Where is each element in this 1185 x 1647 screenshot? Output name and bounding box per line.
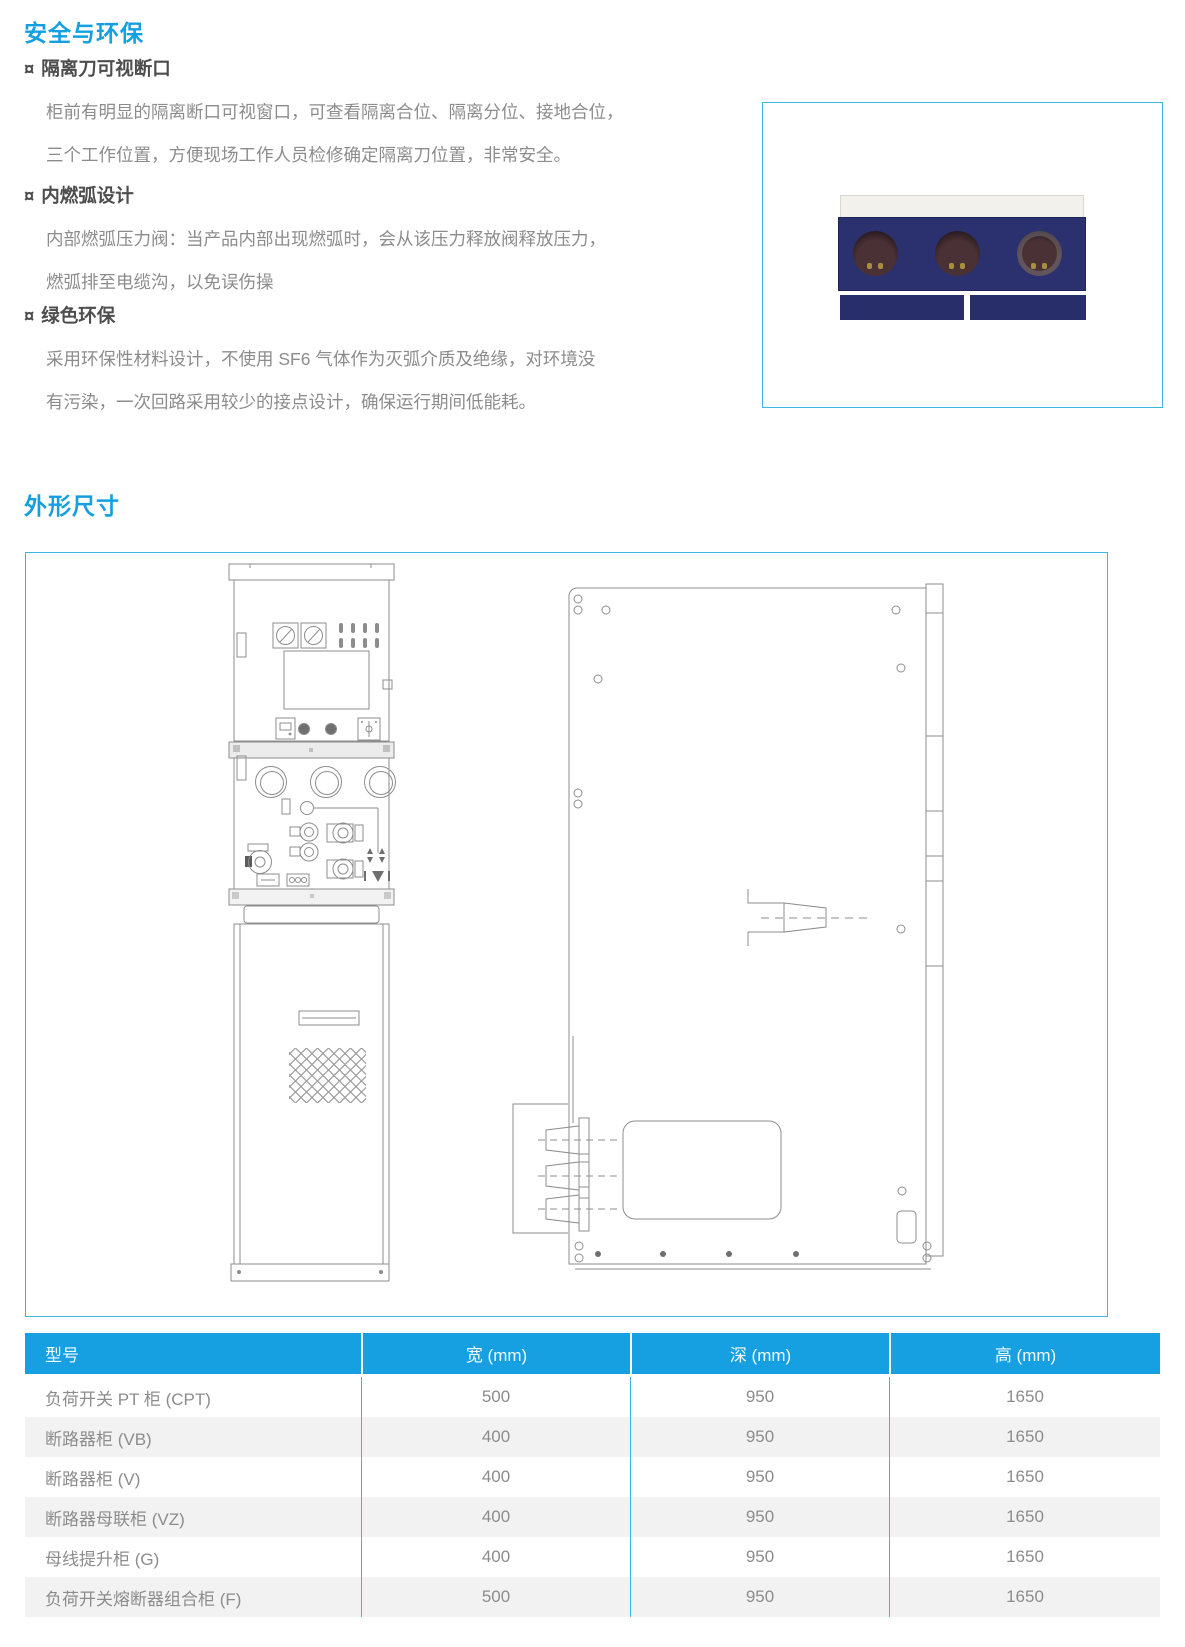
product-photo-frame <box>762 102 1163 408</box>
cabinet-outline-drawing <box>26 553 1107 1316</box>
side-view-drawing <box>513 584 943 1269</box>
feature-paragraph: 采用环保性材料设计，不使用 SF6 气体作为灭弧介质及绝缘，对环境没 有污染，一… <box>46 338 704 424</box>
table-row: 断路器柜 (V) 400 950 1650 <box>25 1457 1160 1497</box>
header-width: 宽 (mm) <box>361 1333 630 1374</box>
feature-internal-arc: ¤内燃弧设计 内部燃弧压力阀：当产品内部出现燃弧时，会从该压力释放阀释放压力， … <box>24 182 704 304</box>
bushing-hole <box>1017 231 1062 276</box>
table-row: 断路器母联柜 (VZ) 400 950 1650 <box>25 1497 1160 1537</box>
width-cell: 400 <box>361 1497 630 1537</box>
table-header-row: 型号 宽 (mm) 深 (mm) 高 (mm) <box>25 1333 1160 1377</box>
paragraph-line: 内部燃弧压力阀：当产品内部出现燃弧时，会从该压力释放阀释放压力， <box>46 218 704 261</box>
section-title-safety: 安全与环保 <box>24 14 144 48</box>
front-view-drawing <box>229 564 396 1281</box>
depth-cell: 950 <box>630 1497 889 1537</box>
feature-paragraph: 柜前有明显的隔离断口可视窗口，可查看隔离合位、隔离分位、接地合位， 三个工作位置… <box>46 91 704 177</box>
depth-cell: 950 <box>630 1537 889 1577</box>
height-cell: 1650 <box>889 1457 1160 1497</box>
paragraph-line: 三个工作位置，方便现场工作人员检修确定隔离刀位置，非常安全。 <box>46 134 704 177</box>
table-row: 断路器柜 (VB) 400 950 1650 <box>25 1417 1160 1457</box>
model-cell: 断路器母联柜 (VZ) <box>25 1497 361 1537</box>
depth-cell: 950 <box>630 1417 889 1457</box>
depth-cell: 950 <box>630 1457 889 1497</box>
feature-heading: ¤内燃弧设计 <box>24 182 704 208</box>
header-model: 型号 <box>25 1333 361 1374</box>
model-cell: 断路器柜 (VB) <box>25 1417 361 1457</box>
paragraph-line: 采用环保性材料设计，不使用 SF6 气体作为灭弧介质及绝缘，对环境没 <box>46 338 704 381</box>
bullet-icon: ¤ <box>24 58 34 79</box>
height-cell: 1650 <box>889 1377 1160 1417</box>
height-cell: 1650 <box>889 1417 1160 1457</box>
width-cell: 500 <box>361 1377 630 1417</box>
feature-heading: ¤绿色环保 <box>24 302 704 328</box>
table-row: 母线提升柜 (G) 400 950 1650 <box>25 1537 1160 1577</box>
bushing-hole <box>935 231 980 276</box>
height-cell: 1650 <box>889 1577 1160 1617</box>
depth-cell: 950 <box>630 1377 889 1417</box>
photo-navy-panel <box>838 217 1086 291</box>
feature-eco-friendly: ¤绿色环保 采用环保性材料设计，不使用 SF6 气体作为灭弧介质及绝缘，对环境没… <box>24 302 704 424</box>
model-cell: 断路器柜 (V) <box>25 1457 361 1497</box>
height-cell: 1650 <box>889 1537 1160 1577</box>
bullet-icon: ¤ <box>24 185 34 206</box>
header-height: 高 (mm) <box>889 1333 1160 1374</box>
depth-cell: 950 <box>630 1577 889 1617</box>
model-cell: 负荷开关熔断器组合柜 (F) <box>25 1577 361 1617</box>
model-cell: 母线提升柜 (G) <box>25 1537 361 1577</box>
feature-visible-break: ¤隔离刀可视断口 柜前有明显的隔离断口可视窗口，可查看隔离合位、隔离分位、接地合… <box>24 55 704 177</box>
feature-heading: ¤隔离刀可视断口 <box>24 55 704 81</box>
dimensions-table: 型号 宽 (mm) 深 (mm) 高 (mm) 负荷开关 PT 柜 (CPT) … <box>25 1333 1160 1617</box>
bullet-icon: ¤ <box>24 305 34 326</box>
feature-paragraph: 内部燃弧压力阀：当产品内部出现燃弧时，会从该压力释放阀释放压力， 燃弧排至电缆沟… <box>46 218 704 304</box>
width-cell: 400 <box>361 1417 630 1457</box>
width-cell: 400 <box>361 1537 630 1577</box>
table-row: 负荷开关熔断器组合柜 (F) 500 950 1650 <box>25 1577 1160 1617</box>
paragraph-line: 柜前有明显的隔离断口可视窗口，可查看隔离合位、隔离分位、接地合位， <box>46 91 704 134</box>
paragraph-line: 燃弧排至电缆沟，以免误伤操 <box>46 261 704 304</box>
paragraph-line: 有污染，一次回路采用较少的接点设计，确保运行期间低能耗。 <box>46 381 704 424</box>
header-depth: 深 (mm) <box>630 1333 889 1374</box>
height-cell: 1650 <box>889 1497 1160 1537</box>
bushing-hole <box>853 231 898 276</box>
width-cell: 500 <box>361 1577 630 1617</box>
photo-bottom-strip <box>970 295 1086 320</box>
model-cell: 负荷开关 PT 柜 (CPT) <box>25 1377 361 1417</box>
table-row: 负荷开关 PT 柜 (CPT) 500 950 1650 <box>25 1377 1160 1417</box>
width-cell: 400 <box>361 1457 630 1497</box>
photo-bottom-strip <box>840 295 964 320</box>
photo-top-strip <box>840 195 1084 218</box>
section-title-dimensions: 外形尺寸 <box>24 487 120 521</box>
dimension-drawing-frame <box>25 552 1108 1317</box>
